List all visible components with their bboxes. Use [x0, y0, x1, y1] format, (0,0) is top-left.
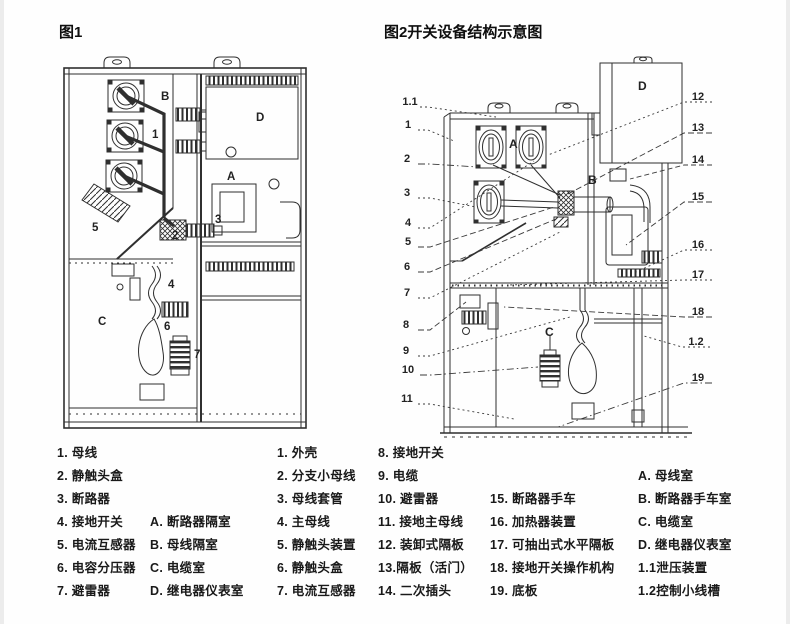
- legend-item: 18. 接地开关操作机构: [490, 557, 614, 580]
- fig2-room-C: C: [545, 325, 554, 339]
- fig2-callout-17: 17: [692, 269, 704, 281]
- legend-item: C. 电缆室: [638, 511, 732, 534]
- figure1-title: 图1: [59, 21, 82, 42]
- legend-item: B. 母线隔室: [150, 534, 244, 557]
- manual-page: { "figure1": { "title": "图1", "labels": …: [0, 0, 790, 624]
- fig2-callout-4: 4: [405, 217, 412, 229]
- legend-item: B. 断路器手车室: [638, 488, 732, 511]
- fig2-callout-9: 9: [403, 345, 409, 357]
- legend-item: 4. 主母线: [277, 511, 356, 534]
- legend-fig2-rooms: A. 母线室 B. 断路器手车室 C. 电缆室 D. 继电器仪表室 1.1泄压装…: [638, 465, 732, 603]
- legend-item: 6. 静触头盒: [277, 557, 356, 580]
- legend-item: 12. 装卸式隔板: [378, 534, 473, 557]
- legend-item: 9. 电缆: [378, 465, 473, 488]
- legend-item: 13.隔板（活门）: [378, 557, 473, 580]
- legend-item: 19. 底板: [490, 580, 614, 603]
- fig2-callout-5: 5: [405, 236, 411, 248]
- fig1-label-2: 2: [172, 230, 178, 242]
- fig2-callout-3: 3: [404, 187, 410, 199]
- fig1-linework: [64, 57, 306, 428]
- legend-item: D. 继电器仪表室: [150, 580, 244, 603]
- fig2-callout-15: 15: [692, 191, 704, 203]
- fig1-label-6: 6: [164, 321, 170, 333]
- fig2-callout-1-2: 1.2: [688, 336, 703, 348]
- legend-item: 1.1泄压装置: [638, 557, 732, 580]
- legend-item: 7. 电流互感器: [277, 580, 356, 603]
- fig1-label-7: 7: [194, 349, 200, 361]
- legend-item: 3. 断路器: [57, 488, 136, 511]
- legend-fig2-items-c: 15. 断路器手车 16. 加热器装置 17. 可抽出式水平隔板 18. 接地开…: [490, 488, 614, 603]
- legend-fig1-rooms: A. 断路器隔室 B. 母线隔室 C. 电缆室 D. 继电器仪表室: [150, 511, 244, 603]
- scan-edge-right: [786, 0, 790, 624]
- legend-item: 1.2控制小线槽: [638, 580, 732, 603]
- fig1-label-D: D: [256, 112, 264, 124]
- fig2-room-B: B: [588, 173, 597, 187]
- fig1-label-1: 1: [152, 129, 159, 141]
- fig2-callout-2: 2: [404, 153, 410, 165]
- legend-item: C. 电缆室: [150, 557, 244, 580]
- legend-fig2-items-b: 8. 接地开关 9. 电缆 10. 避雷器 11. 接地主母线 12. 装卸式隔…: [378, 442, 473, 603]
- legend-item: 7. 避雷器: [57, 580, 136, 603]
- legend-item: 10. 避雷器: [378, 488, 473, 511]
- legend-fig1-items: 1. 母线 2. 静触头盒 3. 断路器 4. 接地开关 5. 电流互感器 6.…: [57, 442, 136, 603]
- legend-item: 5. 电流互感器: [57, 534, 136, 557]
- figure2-panel: 1.1 1 2 3 4 5 6 7 8 9 10 11 12 13 14 15 …: [396, 55, 716, 440]
- fig1-label-C: C: [98, 316, 106, 328]
- fig2-callout-12: 12: [692, 91, 704, 103]
- legend-item: 1. 外壳: [277, 442, 356, 465]
- fig1-label-3: 3: [215, 214, 221, 226]
- fig2-callout-8: 8: [403, 319, 409, 331]
- legend-item: 5. 静触头装置: [277, 534, 356, 557]
- fig2-callout-7: 7: [404, 287, 410, 299]
- figure1-drawing: B 1 D A 3 2 5 4 C 6 7: [60, 56, 310, 438]
- scan-edge-left: [0, 0, 4, 624]
- fig1-label-5: 5: [92, 222, 99, 234]
- legend-item: 2. 分支小母线: [277, 465, 356, 488]
- legend-item: 2. 静触头盒: [57, 465, 136, 488]
- figure2-drawing: 1.1 1 2 3 4 5 6 7 8 9 10 11 12 13 14 15 …: [396, 55, 716, 440]
- fig2-callout-13: 13: [692, 122, 704, 134]
- fig2-callout-6: 6: [404, 261, 410, 273]
- figure2-title: 图2开关设备结构示意图: [384, 21, 542, 42]
- legend-item: 4. 接地开关: [57, 511, 136, 534]
- fig2-callout-10: 10: [402, 364, 414, 376]
- legend-item: A. 母线室: [638, 465, 732, 488]
- fig2-callout-11: 11: [401, 393, 413, 405]
- legend-item: 15. 断路器手车: [490, 488, 614, 511]
- fig2-callout-14: 14: [692, 154, 705, 166]
- fig2-callout-1: 1: [405, 119, 411, 131]
- legend-item: 16. 加热器装置: [490, 511, 614, 534]
- fig1-label-B: B: [161, 91, 169, 103]
- fig2-room-D: D: [638, 79, 647, 93]
- fig2-callout-1-1: 1.1: [402, 96, 417, 108]
- legend-item: 6. 电容分压器: [57, 557, 136, 580]
- fig2-callout-18: 18: [692, 306, 704, 318]
- fig2-callout-16: 16: [692, 239, 704, 251]
- fig2-room-A: A: [509, 137, 518, 151]
- fig1-label-A: A: [227, 171, 235, 183]
- legend-item: D. 继电器仪表室: [638, 534, 732, 557]
- fig2-callout-19: 19: [692, 372, 704, 384]
- legend-item: 17. 可抽出式水平隔板: [490, 534, 614, 557]
- legend-item: 1. 母线: [57, 442, 136, 465]
- figure1-panel: B 1 D A 3 2 5 4 C 6 7: [60, 56, 310, 438]
- legend-item: 11. 接地主母线: [378, 511, 473, 534]
- legend-item: 14. 二次插头: [378, 580, 473, 603]
- legend-item: 8. 接地开关: [378, 442, 473, 465]
- legend-item: A. 断路器隔室: [150, 511, 244, 534]
- legend-item: 3. 母线套管: [277, 488, 356, 511]
- fig1-label-4: 4: [168, 279, 175, 291]
- legend-fig2-items-a: 1. 外壳 2. 分支小母线 3. 母线套管 4. 主母线 5. 静触头装置 6…: [277, 442, 356, 603]
